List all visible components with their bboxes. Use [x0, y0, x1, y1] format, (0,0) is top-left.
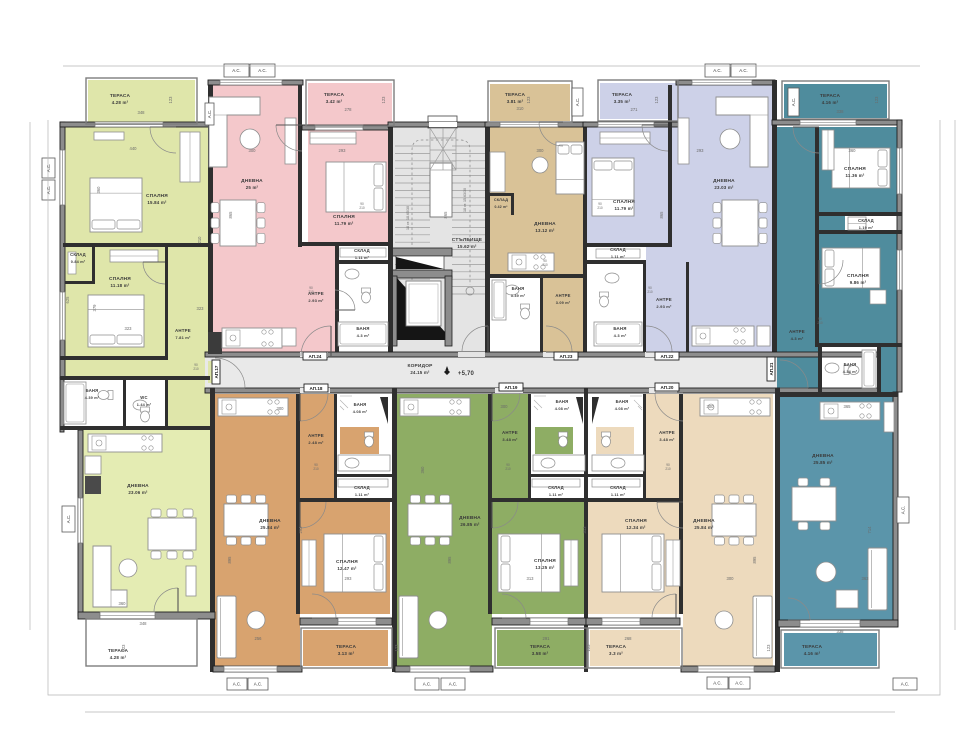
svg-text:АНТРЕ: АНТРЕ [175, 328, 191, 333]
svg-text:A.C.: A.C. [735, 681, 744, 686]
svg-text:ТЕРАСА: ТЕРАСА [110, 93, 131, 99]
svg-text:4.28 m²: 4.28 m² [112, 100, 129, 105]
svg-text:A.C.: A.C. [232, 68, 241, 73]
svg-text:278: 278 [345, 107, 353, 112]
svg-text:2.48 m²: 2.48 m² [308, 440, 324, 445]
svg-text:23.03 m²: 23.03 m² [714, 185, 734, 190]
svg-text:2.93 m²: 2.93 m² [308, 298, 324, 303]
svg-text:ТЕРАСА: ТЕРАСА [802, 644, 823, 650]
svg-text:АП.19: АП.19 [505, 385, 518, 390]
svg-text:A.C.: A.C. [423, 682, 432, 687]
svg-text:323: 323 [197, 306, 205, 311]
svg-text:АНТРЕ: АНТРЕ [502, 430, 518, 435]
svg-text:256: 256 [255, 636, 263, 641]
svg-text:300: 300 [249, 148, 257, 153]
svg-text:ТЕРАСА: ТЕРАСА [530, 644, 551, 650]
svg-text:A.C.: A.C. [254, 682, 263, 687]
svg-text:210: 210 [193, 367, 199, 371]
svg-text:13.12 m²: 13.12 m² [535, 228, 555, 233]
svg-text:БАНЯ: БАНЯ [356, 326, 369, 331]
svg-text:СКЛАД: СКЛАД [70, 252, 86, 257]
svg-text:210: 210 [313, 467, 319, 471]
svg-text:25.84 m²: 25.84 m² [260, 525, 280, 530]
svg-text:210: 210 [308, 290, 314, 294]
svg-text:365: 365 [844, 404, 852, 409]
svg-text:СПАЛНЯ: СПАЛНЯ [534, 558, 556, 564]
svg-text:363: 363 [862, 576, 870, 581]
svg-text:313: 313 [527, 576, 535, 581]
svg-text:СКЛАД: СКЛАД [494, 198, 508, 202]
svg-text:1.11 m²: 1.11 m² [549, 493, 564, 497]
svg-text:A.C.: A.C. [901, 682, 910, 687]
svg-text:300: 300 [727, 576, 735, 581]
svg-text:210: 210 [597, 206, 603, 210]
svg-text:293: 293 [298, 526, 303, 534]
svg-text:АП.22: АП.22 [661, 354, 674, 359]
svg-text:25.84 m²: 25.84 m² [694, 525, 714, 530]
svg-text:СПАЛНЯ: СПАЛНЯ [625, 518, 647, 524]
svg-text:3.13 m²: 3.13 m² [338, 651, 355, 656]
svg-text:ДНЕВНА: ДНЕВНА [534, 221, 556, 227]
svg-text:ТЕРАСА: ТЕРАСА [336, 644, 357, 650]
svg-text:210: 210 [542, 263, 548, 267]
svg-text:3.49 m²: 3.49 m² [511, 294, 526, 298]
svg-text:АНТРЕ: АНТРЕ [308, 433, 324, 438]
svg-text:1.11 m²: 1.11 m² [611, 255, 626, 259]
svg-text:360: 360 [96, 186, 101, 194]
svg-text:АП.18: АП.18 [310, 386, 323, 391]
svg-text:A.C.: A.C. [258, 68, 267, 73]
svg-text:АП.21: АП.21 [769, 362, 774, 375]
svg-text:СПАЛНЯ: СПАЛНЯ [146, 193, 168, 199]
svg-text:293: 293 [339, 148, 347, 153]
svg-text:4.16 m²: 4.16 m² [804, 651, 821, 656]
svg-text:WC: WC [140, 395, 147, 400]
svg-text:ДНЕВНА: ДНЕВНА [127, 483, 149, 489]
svg-text:895: 895 [227, 556, 232, 564]
svg-text:АНТРЕ: АНТРЕ [659, 430, 675, 435]
svg-text:15.62 m²: 15.62 m² [457, 244, 477, 249]
svg-text:A.C.: A.C. [901, 506, 906, 515]
svg-text:3.48 m²: 3.48 m² [502, 437, 518, 442]
svg-text:271: 271 [631, 107, 639, 112]
svg-text:СКЛАД: СКЛАД [548, 485, 564, 490]
svg-text:210: 210 [197, 236, 202, 244]
svg-text:625: 625 [65, 296, 70, 304]
svg-text:0.84 m²: 0.84 m² [71, 260, 86, 264]
svg-text:123: 123 [526, 96, 531, 104]
svg-text:865: 865 [443, 211, 448, 219]
svg-text:210: 210 [505, 467, 511, 471]
svg-text:360: 360 [420, 466, 425, 474]
svg-text:360: 360 [119, 601, 127, 606]
svg-text:A.C.: A.C. [46, 186, 51, 195]
svg-text:СКЛАД: СКЛАД [858, 218, 874, 223]
svg-text:АП.23: АП.23 [560, 354, 573, 359]
svg-text:ДНЕВНА: ДНЕВНА [459, 515, 481, 521]
svg-text:БАНЯ: БАНЯ [512, 286, 525, 291]
svg-text:3.09 m²: 3.09 m² [556, 301, 571, 305]
svg-text:БАНЯ: БАНЯ [844, 362, 857, 367]
svg-text:123: 123 [874, 96, 879, 104]
svg-text:123: 123 [394, 644, 399, 652]
svg-text:АНТРЕ: АНТРЕ [555, 293, 570, 298]
svg-text:300: 300 [537, 148, 545, 153]
svg-text:300: 300 [501, 404, 509, 409]
svg-text:АНТРЕ: АНТРЕ [789, 329, 805, 334]
svg-text:ДНЕВНА: ДНЕВНА [693, 518, 715, 524]
svg-text:323: 323 [125, 326, 133, 331]
svg-text:12.47 m²: 12.47 m² [337, 566, 357, 571]
svg-text:12.34 m²: 12.34 m² [626, 525, 646, 530]
svg-text:БАНЯ: БАНЯ [354, 402, 367, 407]
svg-text:БАНЯ: БАНЯ [613, 326, 626, 331]
svg-text:1.19 m²: 1.19 m² [859, 226, 874, 230]
svg-text:15.84 m²: 15.84 m² [147, 200, 167, 205]
svg-text:СПАЛНЯ: СПАЛНЯ [333, 214, 355, 220]
svg-text:A.C.: A.C. [449, 682, 458, 687]
svg-text:123: 123 [381, 96, 386, 104]
svg-text:4.3 m²: 4.3 m² [791, 336, 804, 341]
svg-text:A.C.: A.C. [713, 68, 722, 73]
svg-text:A.C.: A.C. [233, 682, 242, 687]
svg-text:ДНЕВНА: ДНЕВНА [241, 178, 263, 184]
svg-text:123: 123 [121, 644, 126, 652]
svg-text:9.86 m²: 9.86 m² [850, 280, 867, 285]
svg-text:7.81 m²: 7.81 m² [175, 335, 191, 340]
svg-text:4.39 m²: 4.39 m² [85, 396, 100, 400]
svg-text:3.81 m²: 3.81 m² [507, 99, 524, 104]
svg-text:3.58 m²: 3.58 m² [532, 651, 549, 656]
svg-text:A.C.: A.C. [791, 98, 796, 107]
svg-text:360: 360 [849, 148, 857, 153]
svg-text:СКЛАД: СКЛАД [610, 247, 626, 252]
svg-text:БАНЯ: БАНЯ [556, 399, 569, 404]
svg-text:865: 865 [659, 211, 664, 219]
svg-text:СПАЛНЯ: СПАЛНЯ [847, 273, 869, 279]
svg-text:4.08 m²: 4.08 m² [353, 410, 368, 414]
svg-text:4.3 m²: 4.3 m² [357, 333, 370, 338]
svg-text:A.C.: A.C. [46, 164, 51, 173]
svg-text:БАНЯ: БАНЯ [616, 399, 629, 404]
svg-text:ТЕРАСА: ТЕРАСА [606, 644, 627, 650]
svg-text:11.79 m²: 11.79 m² [335, 221, 354, 226]
svg-text:11.79 m²: 11.79 m² [615, 206, 634, 211]
svg-text:123: 123 [654, 96, 659, 104]
svg-text:210: 210 [817, 321, 823, 325]
svg-text:13.25 m²: 13.25 m² [535, 565, 555, 570]
svg-text:24.15 m²: 24.15 m² [410, 370, 430, 375]
svg-text:1.44 m²: 1.44 m² [137, 403, 152, 407]
svg-text:300: 300 [277, 406, 285, 411]
svg-text:КОРИДОР: КОРИДОР [407, 363, 433, 369]
svg-text:A.C.: A.C. [713, 681, 722, 686]
svg-text:0.42 m²: 0.42 m² [494, 205, 508, 209]
svg-text:210: 210 [647, 290, 653, 294]
svg-text:25.85 m²: 25.85 m² [813, 460, 833, 465]
svg-text:СПАЛНЯ: СПАЛНЯ [109, 276, 131, 282]
svg-text:338: 338 [837, 109, 845, 114]
svg-text:ТЕРАСА: ТЕРАСА [820, 93, 841, 99]
svg-text:25 m²: 25 m² [246, 185, 259, 190]
svg-text:ТЕРАСА: ТЕРАСА [324, 92, 345, 98]
svg-text:11.18 m²: 11.18 m² [111, 283, 130, 288]
svg-text:4.3 m²: 4.3 m² [614, 333, 627, 338]
svg-text:300: 300 [707, 404, 715, 409]
svg-text:1.11 m²: 1.11 m² [355, 256, 370, 260]
svg-text:ТЕРАСА: ТЕРАСА [612, 92, 633, 98]
svg-text:4.34 m²: 4.34 m² [843, 370, 858, 374]
svg-text:ДНЕВНА: ДНЕВНА [812, 453, 834, 459]
svg-text:4.16 m²: 4.16 m² [822, 100, 839, 105]
svg-text:4.08 m²: 4.08 m² [555, 407, 570, 411]
svg-text:A.C.: A.C. [66, 515, 71, 524]
svg-text:3.48 m²: 3.48 m² [659, 437, 675, 442]
svg-text:123: 123 [168, 96, 173, 104]
svg-text:23.06 m²: 23.06 m² [128, 490, 148, 495]
svg-text:БАНЯ: БАНЯ [86, 388, 99, 393]
svg-text:293: 293 [345, 576, 353, 581]
svg-text:26.85 m²: 26.85 m² [460, 522, 480, 527]
svg-text:18 ст. 18.65/30: 18 ст. 18.65/30 [406, 206, 410, 230]
svg-text:11.36 m²: 11.36 m² [846, 173, 865, 178]
svg-text:3.35 m²: 3.35 m² [614, 99, 631, 104]
svg-text:СПАЛНЯ: СПАЛНЯ [336, 559, 358, 565]
svg-text:АНТРЕ: АНТРЕ [656, 297, 672, 302]
svg-text:348: 348 [138, 110, 146, 115]
svg-text:СКЛАД: СКЛАД [354, 485, 370, 490]
svg-text:АП.17: АП.17 [214, 365, 219, 378]
svg-text:865: 865 [228, 211, 233, 219]
svg-text:СПАЛНЯ: СПАЛНЯ [613, 199, 635, 205]
svg-text:310: 310 [517, 106, 525, 111]
svg-text:210: 210 [665, 467, 671, 471]
svg-text:714: 714 [867, 526, 872, 534]
svg-text:A.C.: A.C. [739, 68, 748, 73]
svg-text:СПАЛНЯ: СПАЛНЯ [844, 166, 866, 172]
svg-text:АП.20: АП.20 [661, 385, 674, 390]
svg-text:338: 338 [837, 629, 845, 634]
svg-text:1.11 m²: 1.11 m² [611, 493, 626, 497]
svg-text:ДНЕВНА: ДНЕВНА [713, 178, 735, 184]
svg-text:4.08 m²: 4.08 m² [615, 407, 630, 411]
svg-text:18 ст. 15.63/30: 18 ст. 15.63/30 [463, 188, 467, 212]
svg-text:4.28 m²: 4.28 m² [110, 655, 127, 660]
svg-text:313: 313 [582, 526, 587, 534]
svg-text:291: 291 [543, 636, 551, 641]
svg-text:+5,70: +5,70 [458, 371, 475, 377]
svg-text:1.11 m²: 1.11 m² [355, 493, 370, 497]
svg-text:268: 268 [625, 636, 633, 641]
svg-text:3.3 m²: 3.3 m² [609, 651, 623, 656]
svg-text:123: 123 [586, 644, 591, 652]
svg-text:A.C.: A.C. [575, 98, 580, 107]
svg-text:895: 895 [447, 556, 452, 564]
svg-text:СТЪЛБИЩЕ: СТЪЛБИЩЕ [452, 237, 483, 243]
svg-text:СКЛАД: СКЛАД [610, 485, 626, 490]
svg-text:293: 293 [697, 148, 705, 153]
svg-text:123: 123 [766, 644, 771, 652]
svg-text:3.42 m²: 3.42 m² [326, 99, 343, 104]
svg-text:ТЕРАСА: ТЕРАСА [505, 92, 526, 98]
svg-text:2.93 m²: 2.93 m² [656, 304, 672, 309]
svg-text:АП.24: АП.24 [309, 354, 322, 359]
svg-text:210: 210 [359, 206, 365, 210]
svg-text:348: 348 [140, 621, 148, 626]
svg-text:895: 895 [752, 556, 757, 564]
svg-text:ДНЕВНА: ДНЕВНА [259, 518, 281, 524]
svg-text:A.C.: A.C. [207, 110, 212, 119]
svg-text:379: 379 [92, 304, 97, 312]
svg-text:440: 440 [130, 146, 138, 151]
svg-text:СКЛАД: СКЛАД [354, 248, 370, 253]
